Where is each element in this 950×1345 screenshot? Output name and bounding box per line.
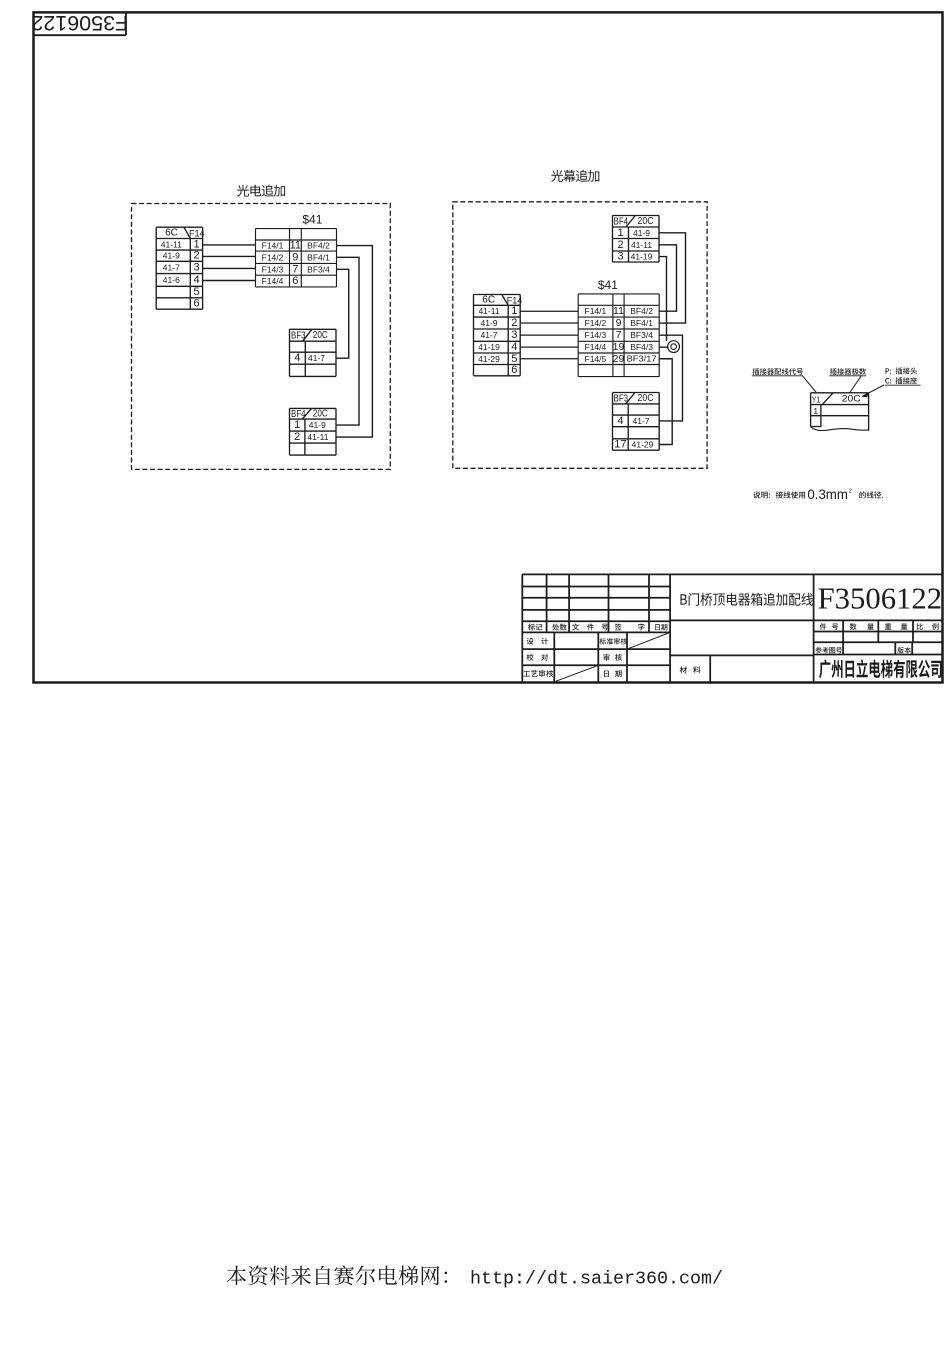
- svg-text:http://dt.saier360.com/: http://dt.saier360.com/: [470, 1269, 723, 1290]
- svg-text:BF3/4: BF3/4: [307, 264, 330, 274]
- svg-text:1: 1: [193, 238, 199, 250]
- svg-text:41-7: 41-7: [308, 353, 325, 363]
- svg-text:BF4/1: BF4/1: [630, 318, 653, 328]
- svg-text:F14: F14: [189, 228, 205, 238]
- svg-text:4: 4: [511, 341, 517, 353]
- svg-text:F14/3: F14/3: [262, 264, 284, 274]
- svg-text:11: 11: [613, 305, 624, 317]
- svg-text:41-7: 41-7: [480, 330, 497, 340]
- svg-text:BF3: BF3: [291, 329, 306, 341]
- svg-text:BF4/2: BF4/2: [630, 306, 653, 316]
- svg-text:41-11: 41-11: [478, 306, 499, 316]
- svg-text:6: 6: [193, 298, 199, 310]
- svg-text:F3506122: F3506122: [818, 581, 943, 616]
- svg-text:2: 2: [617, 239, 623, 251]
- svg-text:7: 7: [292, 263, 298, 275]
- svg-text:20C: 20C: [313, 329, 328, 341]
- svg-text:BF4/3: BF4/3: [630, 342, 653, 352]
- svg-text:F14/3: F14/3: [585, 330, 607, 340]
- svg-text:11: 11: [290, 240, 301, 252]
- svg-text:3: 3: [193, 262, 199, 274]
- svg-text:BF3/4: BF3/4: [630, 330, 653, 340]
- svg-text:F14/2: F14/2: [585, 318, 607, 328]
- svg-text:20C: 20C: [638, 392, 654, 404]
- svg-text:F14/4: F14/4: [585, 342, 607, 352]
- svg-text:4: 4: [193, 274, 199, 286]
- svg-text:BF4: BF4: [614, 215, 629, 227]
- svg-text:19: 19: [613, 341, 625, 353]
- svg-text:20C: 20C: [842, 394, 861, 405]
- svg-text:41-19: 41-19: [631, 252, 653, 262]
- svg-text:2: 2: [193, 250, 199, 262]
- svg-text:0.3mm: 0.3mm: [807, 486, 848, 502]
- svg-text:41-7: 41-7: [163, 263, 180, 273]
- svg-text:41-6: 41-6: [163, 275, 180, 285]
- svg-text:F14/5: F14/5: [585, 354, 607, 364]
- svg-text:BF3: BF3: [614, 392, 629, 404]
- svg-text:F14: F14: [507, 295, 523, 305]
- svg-text:F14/1: F14/1: [585, 306, 607, 316]
- svg-text:BF4: BF4: [291, 408, 306, 420]
- svg-text:41-9: 41-9: [633, 228, 650, 238]
- svg-text:1: 1: [617, 227, 623, 239]
- svg-text:20C: 20C: [313, 408, 328, 420]
- svg-text:20C: 20C: [638, 215, 654, 227]
- svg-text:$41: $41: [598, 278, 618, 292]
- svg-text:4: 4: [294, 352, 300, 364]
- svg-text:41-11: 41-11: [307, 432, 328, 442]
- svg-text:2: 2: [511, 317, 517, 329]
- svg-text:9: 9: [616, 317, 622, 329]
- svg-text:2: 2: [294, 431, 300, 443]
- svg-text:5: 5: [511, 353, 517, 365]
- svg-text:41-29: 41-29: [632, 440, 654, 450]
- svg-text:41-7: 41-7: [632, 416, 649, 426]
- svg-text:3: 3: [617, 251, 623, 263]
- svg-text:BF4/1: BF4/1: [307, 252, 330, 262]
- svg-text:BF3/17: BF3/17: [627, 354, 657, 363]
- svg-text:5: 5: [193, 286, 199, 298]
- svg-text:6C: 6C: [165, 228, 178, 239]
- svg-text:3: 3: [511, 329, 517, 341]
- svg-text:41-19: 41-19: [478, 342, 500, 352]
- svg-text:17: 17: [614, 439, 626, 451]
- svg-text:7: 7: [616, 329, 622, 341]
- svg-text:6C: 6C: [482, 295, 495, 306]
- svg-text:F14/2: F14/2: [262, 252, 284, 262]
- svg-text:1: 1: [511, 305, 517, 317]
- svg-text:F3506122: F3506122: [31, 11, 128, 35]
- svg-text:F14/1: F14/1: [262, 241, 284, 251]
- svg-text:41-9: 41-9: [480, 318, 497, 328]
- svg-text:41-11: 41-11: [161, 239, 182, 249]
- svg-text:41-11: 41-11: [631, 240, 652, 250]
- svg-text:41-9: 41-9: [163, 251, 180, 261]
- svg-text:1: 1: [813, 406, 818, 416]
- svg-text:41-9: 41-9: [309, 420, 326, 430]
- svg-text:1: 1: [294, 419, 300, 431]
- svg-text:41-29: 41-29: [478, 354, 500, 364]
- svg-text:Y1: Y1: [812, 394, 821, 404]
- svg-text:2: 2: [849, 488, 852, 494]
- svg-text:9: 9: [292, 251, 298, 263]
- svg-text:29: 29: [613, 353, 625, 365]
- svg-text:4: 4: [617, 415, 623, 427]
- svg-text:BF4/2: BF4/2: [307, 241, 330, 251]
- svg-text:6: 6: [511, 364, 517, 376]
- svg-text:6: 6: [292, 275, 298, 287]
- svg-text:$41: $41: [302, 212, 322, 226]
- svg-text:F14/4: F14/4: [262, 276, 284, 286]
